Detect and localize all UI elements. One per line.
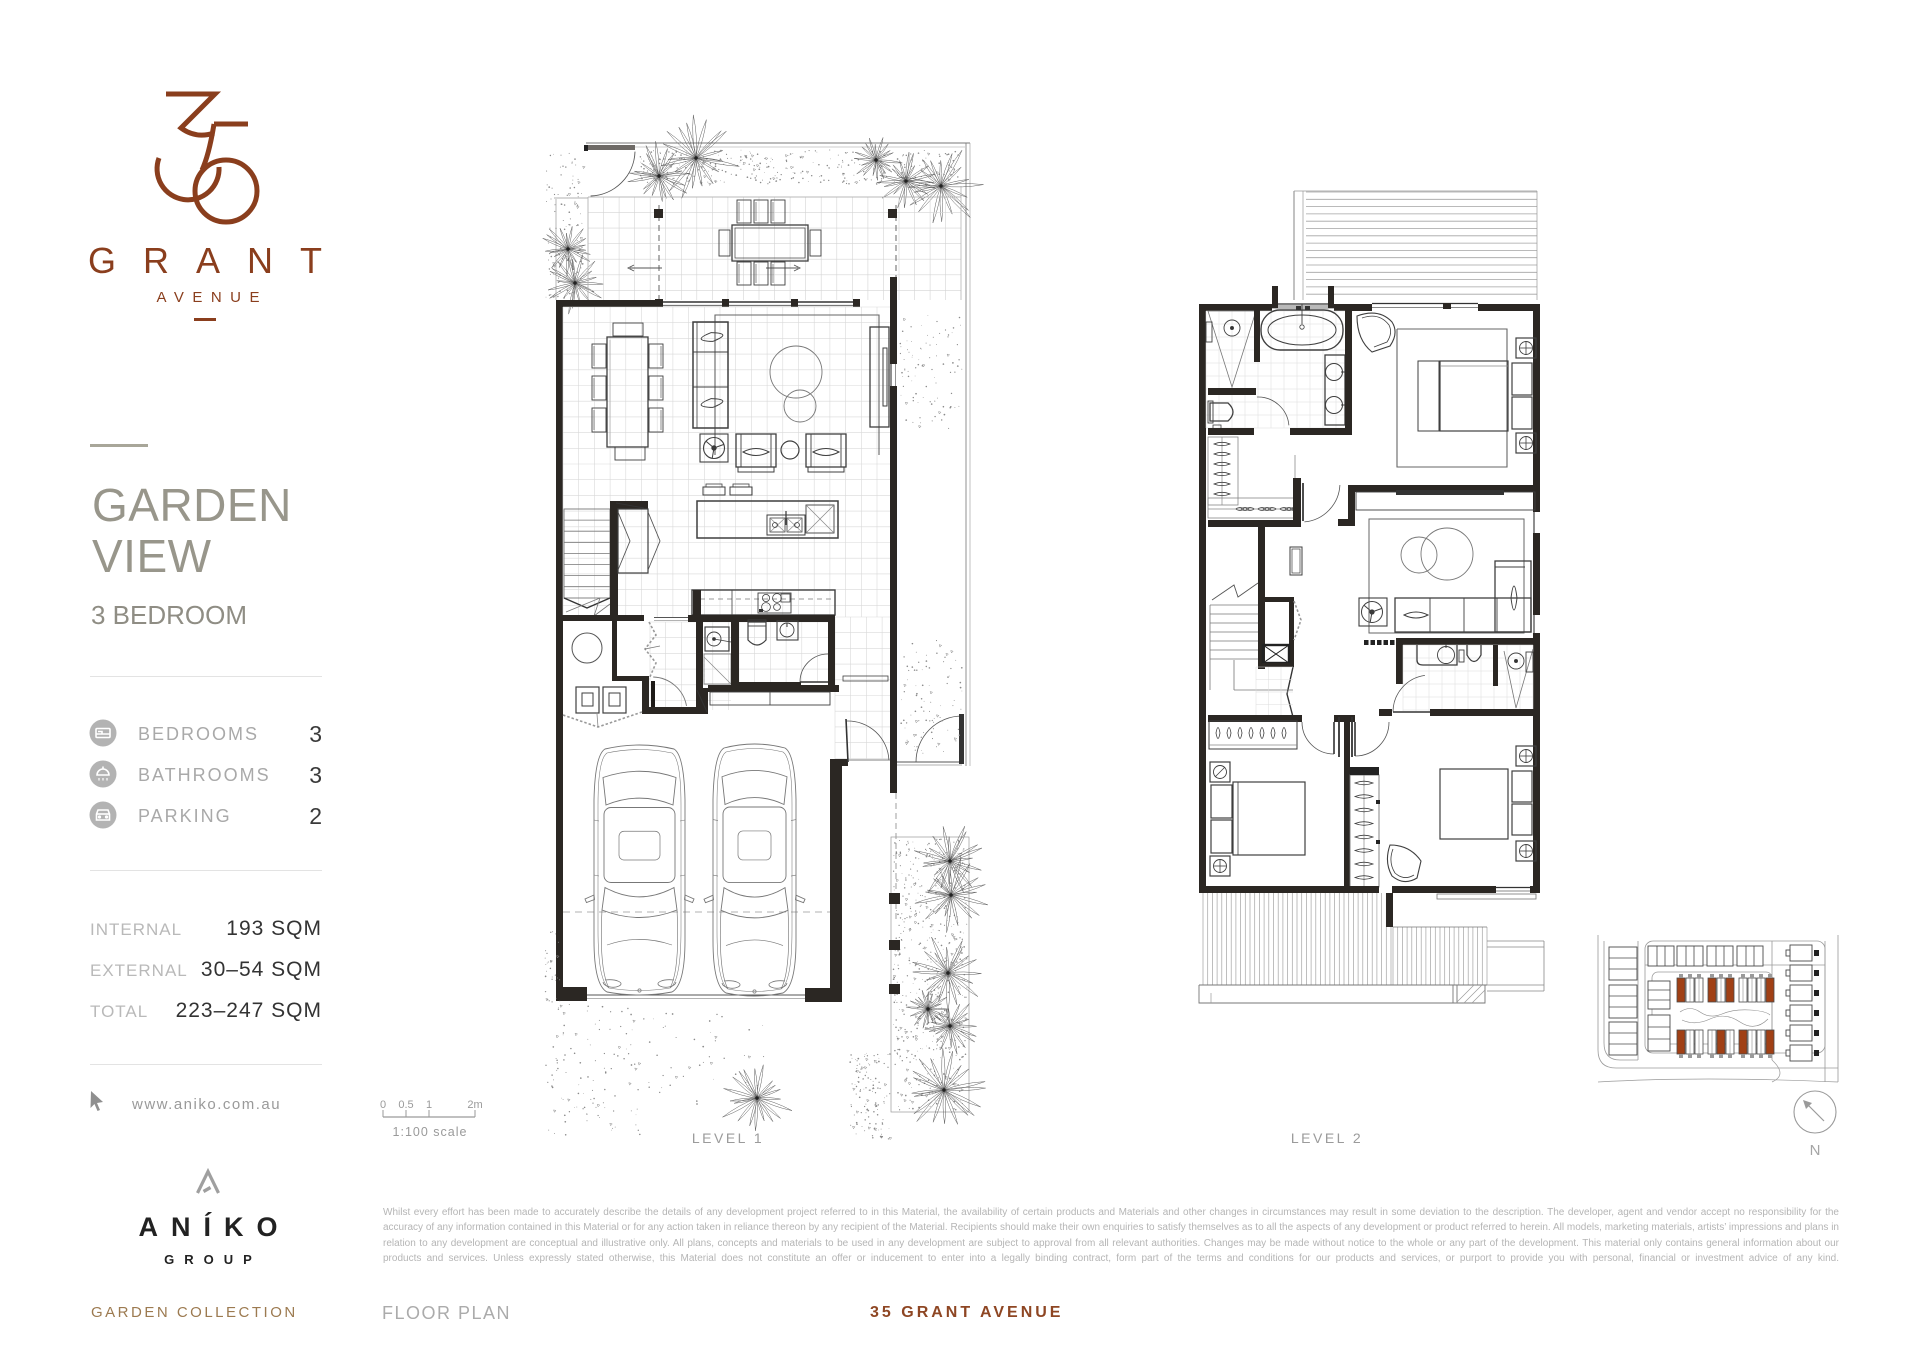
svg-text:1: 1 — [426, 1099, 432, 1111]
svg-text:1:100 scale: 1:100 scale — [393, 1125, 468, 1139]
svg-text:LEVEL 1: LEVEL 1 — [692, 1130, 764, 1146]
svg-text:LEVEL 2: LEVEL 2 — [1291, 1130, 1363, 1146]
svg-text:2m: 2m — [467, 1099, 482, 1111]
svg-text:0.5: 0.5 — [398, 1099, 413, 1111]
svg-text:0: 0 — [380, 1099, 386, 1111]
svg-text:N: N — [1810, 1142, 1821, 1159]
